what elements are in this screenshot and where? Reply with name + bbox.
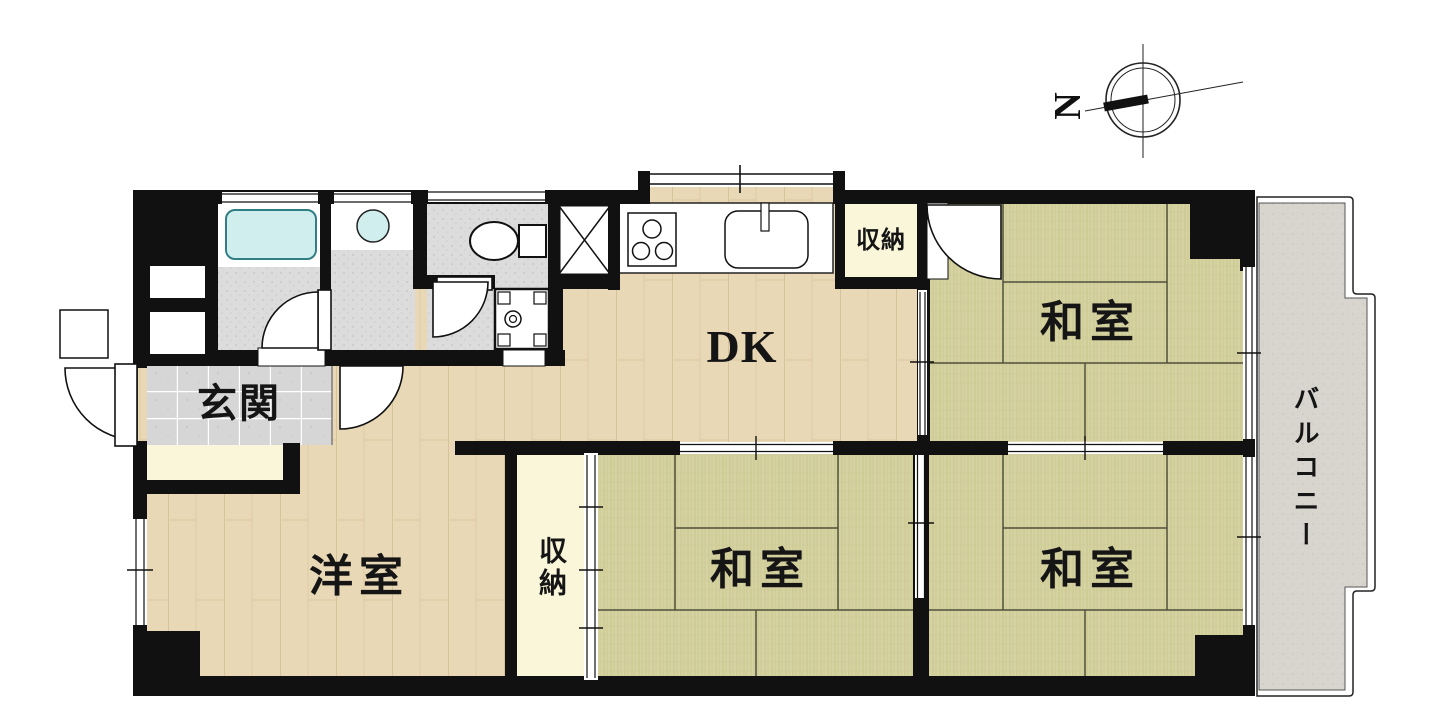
toilet-bowl — [470, 222, 518, 260]
meter-box — [60, 266, 205, 358]
pipe-shaft — [557, 203, 612, 277]
laundry-door-opening — [503, 350, 545, 366]
bathroom-door-leaf — [318, 290, 331, 350]
washroom-window — [334, 192, 411, 204]
toilet-window — [428, 190, 545, 202]
faucet — [761, 203, 769, 231]
wash-basin — [357, 210, 389, 242]
balcony-label: バルコニー — [1291, 385, 1317, 555]
bathtub — [226, 210, 316, 259]
dining-kitchen-label: DK — [707, 324, 778, 370]
compass-north-label: N — [1047, 92, 1089, 119]
japanese-room-sc-label: 和室 — [710, 548, 810, 592]
storage-center-label: 収納 — [536, 536, 564, 600]
washroom-door-opening — [258, 348, 325, 366]
western-room-label: 洋室 — [309, 555, 409, 599]
compass: N — [1047, 44, 1243, 158]
japanese-room-se-label: 和室 — [1040, 548, 1140, 592]
kitchen-counter — [618, 203, 833, 273]
entrance-door-leaf — [115, 364, 137, 446]
toilet-tank — [519, 225, 546, 257]
japanese-room-ne-label: 和室 — [1040, 301, 1140, 345]
bathroom-window — [222, 192, 318, 204]
entrance-label: 玄関 — [197, 384, 281, 424]
washer-pan — [495, 289, 549, 349]
storage-north-label: 収納 — [856, 229, 906, 253]
floor-plan-page: N 玄関 DK 収納 和室 洋室 収納 和室 和室 バルコニー — [0, 0, 1438, 726]
entrance-step — [147, 445, 287, 484]
